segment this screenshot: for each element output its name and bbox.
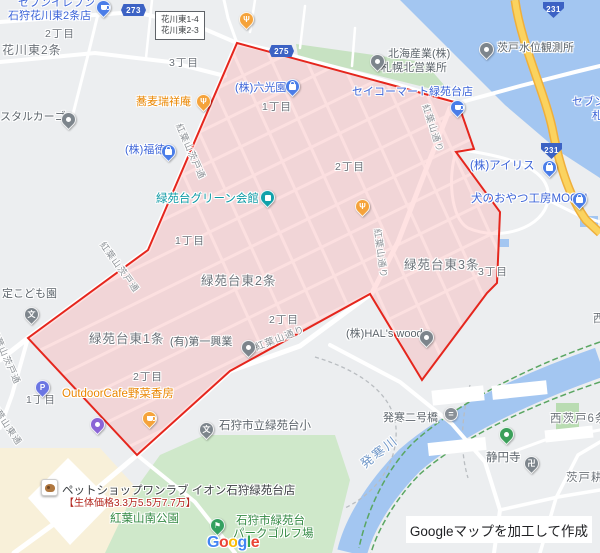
area-ryokuendai-higashi-1jo: 緑苑台東1条	[89, 332, 164, 346]
fukutoku-label[interactable]: (株)福徳	[125, 144, 165, 157]
kodomoen-label[interactable]: 定こども園	[2, 288, 57, 301]
google-logo-letter: e	[251, 534, 259, 551]
edge-sapporo-label[interactable]: 札	[592, 110, 600, 123]
landmark-box-line: 花川東1-4	[161, 14, 199, 25]
elementary-school-label[interactable]: 石狩市立緑苑台小	[219, 420, 311, 433]
attribution-notice: Googleマップを加工して作成	[406, 516, 592, 543]
petshop-label[interactable]: ペットショップワンラブ イオン石狩緑苑台店	[62, 485, 295, 498]
map-label: 2丁目	[335, 161, 365, 173]
map-canvas[interactable]: セブンイレブン石狩花川東2条店花川東2条2丁目3丁目蕎麦瑞祥庵(株)六光園セイコ…	[0, 0, 600, 553]
soba-restaurant-pin-glyph: Ψ	[197, 95, 210, 108]
google-logo[interactable]: Google	[207, 534, 259, 552]
seicomart-label[interactable]: セイコーマート緑苑台店	[352, 86, 473, 99]
petshop-photo-icon-glyph	[42, 480, 57, 495]
map-label: 1丁目	[175, 235, 205, 247]
petshop-price-label[interactable]: 【生体価格3.3万5.5万7.7万】	[64, 498, 196, 510]
landmark-box-line: 花川東2-3	[161, 25, 199, 36]
google-logo-letter: G	[207, 534, 219, 551]
temple-statue-pin-glyph	[500, 428, 513, 441]
hokkai-sangyo-label-2[interactable]: 札幌北営業所	[381, 62, 447, 75]
manji-temple-pin-glyph: 卍	[525, 457, 538, 470]
iris-pin-glyph	[543, 161, 556, 174]
iris-label[interactable]: (株)アイリス	[470, 160, 535, 173]
parking-pin-glyph: P	[36, 381, 49, 394]
golf-pin-glyph: ⚑	[211, 519, 224, 532]
park-golf-label[interactable]: 石狩市緑苑台	[236, 515, 305, 528]
edge-seven-label[interactable]: セブン	[572, 96, 600, 109]
route-273-badge: 273	[121, 4, 146, 16]
area-ryokuendai-higashi-2jo: 緑苑台東2条	[201, 274, 276, 288]
hals-wood-label[interactable]: (株)HAL's wood	[346, 328, 423, 341]
outdoor-cafe-pin-glyph	[143, 412, 156, 425]
hokkai-sangyo-label[interactable]: 北海産業(株)	[388, 48, 450, 61]
area-nishibarato-6jo: 西茨戸6条	[550, 413, 600, 426]
google-logo-letter: o	[219, 534, 228, 551]
hokkai-sangyo-pin-glyph	[371, 55, 384, 68]
map-label: 3丁目	[478, 266, 508, 278]
seven-eleven-label[interactable]: セブンイレブン	[18, 0, 95, 10]
seicomart-pin-glyph	[451, 101, 464, 114]
outdoor-cafe-label[interactable]: OutdoorCafe野菜香房	[62, 388, 174, 401]
mogu-pin-glyph	[573, 193, 586, 206]
map-label: 3丁目	[169, 57, 199, 69]
landmark-pin-glyph	[91, 418, 104, 431]
bridge-label[interactable]: 発寒二号橋	[383, 412, 438, 425]
water-station-label[interactable]: 茨戸水位観測所	[497, 42, 574, 55]
attribution-text: Googleマップを加工して作成	[410, 520, 588, 540]
map-label: 1丁目	[262, 101, 292, 113]
water-station-pin-glyph	[480, 43, 493, 56]
rental-cargo-pin-glyph	[62, 113, 75, 126]
joenji-temple-label[interactable]: 静円寺	[486, 452, 521, 465]
fukutoku-pin-glyph	[162, 145, 175, 158]
google-logo-letter: o	[228, 534, 237, 551]
landmark-box: 花川東1-4花川東2-3	[155, 11, 205, 40]
map-label: 2丁目	[269, 314, 299, 326]
map-artwork	[0, 0, 600, 553]
hals-wood-pin-glyph	[420, 331, 433, 344]
rokkoen-label[interactable]: (株)六光園	[235, 82, 286, 95]
elementary-school-pin-glyph: 文	[200, 423, 213, 436]
green-hall-pin-glyph	[261, 191, 274, 204]
daiichi-kogyo-label[interactable]: (有)第一興業	[170, 336, 232, 349]
seven-eleven-pin-glyph	[97, 1, 110, 14]
rental-cargo-label[interactable]: スタルカーゴ	[0, 111, 66, 124]
pond-2	[499, 239, 509, 247]
daiichi-kogyo-pin-glyph	[242, 341, 255, 354]
area-hanakawahigashi-2jo: 花川東2条	[2, 44, 62, 58]
kodomoen-school-pin-glyph: 文	[25, 308, 38, 321]
map-label: 西	[593, 313, 600, 326]
bridge-icon-glyph: =	[445, 408, 457, 420]
rokkoen-pin-glyph	[286, 80, 299, 93]
google-logo-letter: g	[238, 534, 247, 551]
momijiyama-park-label[interactable]: 紅葉山南公園	[110, 513, 179, 526]
restaurant-pin-north-glyph: Ψ	[240, 13, 253, 26]
seven-eleven-label-2[interactable]: 石狩花川東2条店	[8, 10, 91, 23]
restaurant-pin-center-glyph: Ψ	[356, 200, 369, 213]
green-hall-label[interactable]: 緑苑台グリーン会館	[156, 193, 259, 206]
area-ryokuendai-higashi-3jo: 緑苑台東3条	[404, 258, 479, 272]
area-barato-edge: 茨戸耕	[566, 472, 600, 485]
map-label: 2丁目	[133, 371, 163, 383]
mogu-label[interactable]: 犬のおやつ工房MOGU	[471, 193, 587, 206]
soba-zuishoan-label[interactable]: 蕎麦瑞祥庵	[136, 96, 191, 109]
map-label: 2丁目	[45, 28, 75, 40]
route-275-badge: 275	[269, 45, 294, 57]
